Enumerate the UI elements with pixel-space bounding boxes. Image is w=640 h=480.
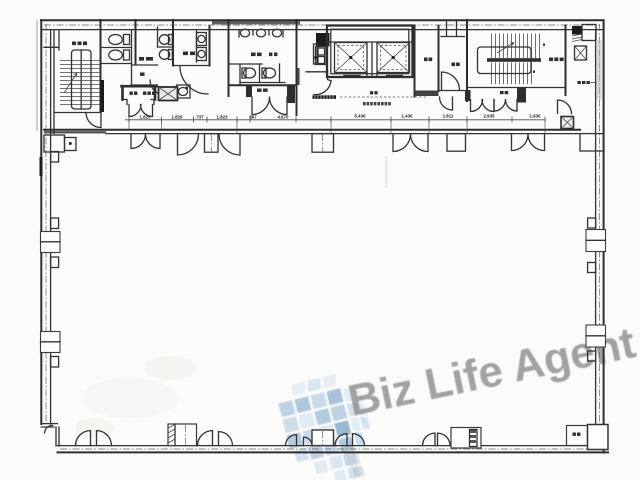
svg-text:1.811: 1.811	[443, 113, 454, 118]
svg-text:1.823: 1.823	[140, 114, 152, 119]
svg-text:4.870: 4.870	[278, 114, 290, 119]
svg-text:737: 737	[196, 114, 204, 119]
svg-text:1.823: 1.823	[217, 114, 229, 119]
svg-text:1.930: 1.930	[530, 113, 542, 118]
svg-text:2.935: 2.935	[484, 113, 496, 118]
svg-text:897: 897	[249, 114, 257, 119]
svg-text:1.820: 1.820	[172, 114, 184, 119]
svg-text:5.430: 5.430	[355, 113, 367, 118]
svg-text:1.430: 1.430	[402, 113, 414, 118]
